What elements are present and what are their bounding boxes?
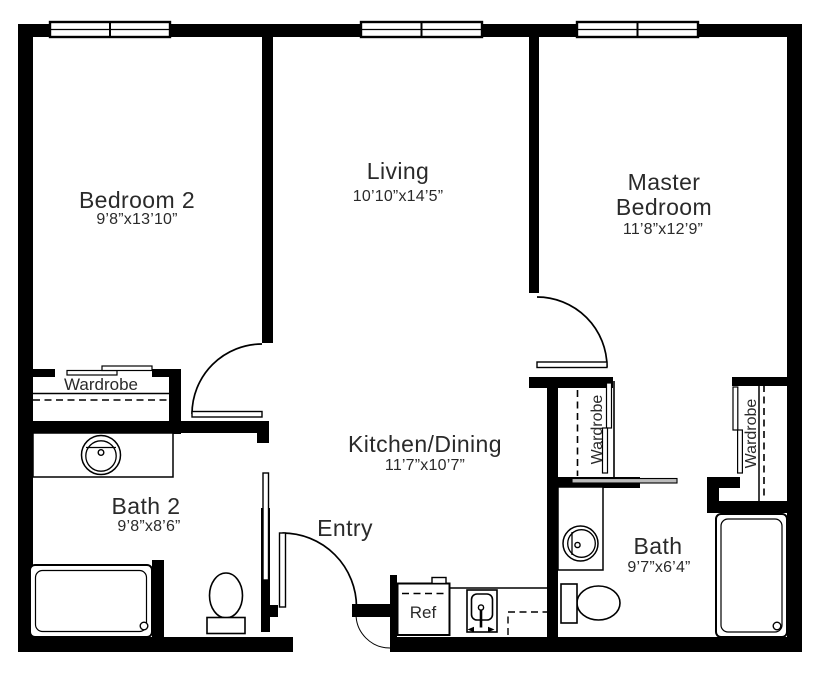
room-label-bedroom2: Bedroom 2 xyxy=(79,187,195,213)
wall-living-master xyxy=(529,37,539,293)
wall-bedroom2-living xyxy=(262,37,273,343)
toilet-bath xyxy=(561,584,620,623)
entry-door-arc xyxy=(283,533,357,607)
toilet-bath2 xyxy=(207,573,245,634)
wardrobe-sliding-panel xyxy=(738,430,743,473)
room-dims-living: 10’10”x14’5” xyxy=(353,188,443,205)
room-dims-bath: 9’7”x6’4” xyxy=(627,559,690,576)
wall-master-door-lower xyxy=(529,377,613,388)
bathtub-bath2 xyxy=(30,565,152,637)
tub-drain xyxy=(140,622,148,630)
wall-bottom-seg1 xyxy=(18,637,293,652)
bedroom2-door-leaf xyxy=(192,412,262,418)
wall-tub-side-stub xyxy=(152,560,164,637)
room-dims-master: 11’8”x12’9” xyxy=(623,221,703,238)
room-label-entry: Entry xyxy=(317,515,373,541)
master-door-arc xyxy=(537,297,607,367)
wall-right xyxy=(787,24,802,652)
wall-entry-stub xyxy=(352,604,396,617)
wall-wardrobe2-left-stub xyxy=(33,369,55,377)
bath-sliding-door xyxy=(572,479,677,484)
bathtub-bath xyxy=(716,514,787,637)
wall-top-seg2 xyxy=(170,24,361,37)
floor-plan-drawing: Wardrobe Ref xyxy=(0,0,820,682)
wall-bath-left xyxy=(547,377,558,637)
tub-drain xyxy=(773,622,781,630)
tub-outer xyxy=(716,514,787,637)
exterior-walls xyxy=(18,24,802,652)
entry-door-leaf xyxy=(280,533,286,607)
sink-drain xyxy=(575,542,580,547)
kitchen-faucet-hole xyxy=(478,605,483,610)
wardrobe-sliding-panel xyxy=(733,387,738,430)
dishwasher-dashed-outline xyxy=(508,612,548,635)
room-label-master-line1: Master xyxy=(628,169,701,195)
wall-wardrobe-master-bottom xyxy=(707,501,787,513)
wall-kitchen-stub xyxy=(390,575,397,637)
wall-left xyxy=(18,24,33,652)
wardrobe-hall: Wardrobe xyxy=(578,381,615,478)
fridge-handle xyxy=(432,578,446,584)
entry-door-swing-thin-arc xyxy=(356,614,390,648)
room-label-bath: Bath xyxy=(634,533,683,559)
toilet-tank xyxy=(561,584,577,623)
window-master xyxy=(577,22,698,37)
toilet-bowl xyxy=(210,573,243,618)
room-label-master-line2: Bedroom xyxy=(616,194,712,220)
wardrobe-label-bedroom2: Wardrobe xyxy=(64,375,138,394)
toilet-bowl xyxy=(577,586,620,620)
wall-bottom-seg2 xyxy=(390,637,802,652)
wall-bath2-top xyxy=(18,421,257,433)
wardrobe-sliding-panel xyxy=(607,383,612,428)
sink-drain xyxy=(98,450,104,456)
fridge-label: Ref xyxy=(410,603,437,622)
room-dims-bedroom2: 9’8”x13’10” xyxy=(96,211,177,228)
bedroom2-door-arc xyxy=(192,344,262,414)
room-label-living: Living xyxy=(367,158,430,184)
wall-top-seg3 xyxy=(482,24,577,37)
wall-bath2-top-cap xyxy=(257,421,269,443)
window-bedroom2 xyxy=(50,22,170,37)
windows xyxy=(50,22,698,37)
kitchen-fixtures: Ref xyxy=(398,578,549,636)
wardrobe-sliding-panel xyxy=(102,366,152,371)
room-label-bath2: Bath 2 xyxy=(112,493,181,519)
bath2-fixtures xyxy=(30,433,245,637)
wardrobe-label-master: Wardrobe xyxy=(743,399,760,469)
kitchen-sink xyxy=(467,590,497,632)
room-label-kitchen: Kitchen/Dining xyxy=(348,431,502,457)
wall-top-seg4 xyxy=(698,24,802,37)
wardrobe-label-hall: Wardrobe xyxy=(589,395,606,465)
tub-outer xyxy=(30,565,152,637)
toilet-tank xyxy=(207,618,245,634)
bath2-pocket-door xyxy=(263,473,269,580)
floor-plan: Wardrobe Ref xyxy=(0,0,820,682)
wall-entry-hinge-stub xyxy=(261,605,278,617)
room-dims-kitchen: 11’7”x10’7” xyxy=(385,457,465,474)
master-door-leaf xyxy=(537,362,607,368)
room-labels: Bedroom 2 9’8”x13’10” Living 10’10”x14’5… xyxy=(79,158,712,576)
refrigerator: Ref xyxy=(398,578,450,636)
room-dims-bath2: 9’8”x8’6” xyxy=(117,518,180,535)
window-living xyxy=(361,22,482,37)
